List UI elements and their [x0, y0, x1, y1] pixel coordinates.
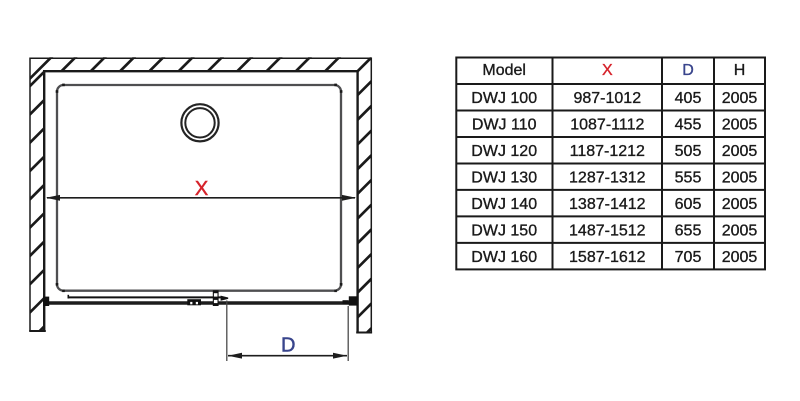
svg-text:1087-1112: 1087-1112	[570, 117, 644, 134]
svg-text:X: X	[602, 62, 613, 79]
svg-text:DWJ 100: DWJ 100	[471, 90, 537, 107]
svg-text:2005: 2005	[722, 249, 758, 266]
svg-text:555: 555	[675, 170, 702, 187]
svg-text:1287-1312: 1287-1312	[569, 170, 646, 187]
svg-text:2005: 2005	[722, 117, 758, 134]
svg-text:DWJ 130: DWJ 130	[471, 170, 537, 187]
svg-text:455: 455	[675, 117, 702, 134]
svg-text:2005: 2005	[722, 196, 758, 213]
svg-text:DWJ 150: DWJ 150	[471, 223, 537, 240]
svg-text:2005: 2005	[722, 143, 758, 160]
svg-text:DWJ 120: DWJ 120	[471, 143, 537, 160]
svg-text:505: 505	[675, 143, 702, 160]
svg-text:405: 405	[675, 90, 702, 107]
svg-text:987-1012: 987-1012	[573, 90, 641, 107]
svg-text:2005: 2005	[722, 223, 758, 240]
svg-text:655: 655	[675, 223, 702, 240]
svg-text:Model: Model	[482, 62, 526, 79]
svg-text:605: 605	[675, 196, 702, 213]
svg-text:2005: 2005	[722, 170, 758, 187]
svg-text:1387-1412: 1387-1412	[569, 196, 646, 213]
svg-text:1487-1512: 1487-1512	[569, 223, 646, 240]
svg-text:1187-1212: 1187-1212	[570, 143, 645, 160]
svg-text:DWJ 160: DWJ 160	[471, 249, 537, 266]
svg-text:DWJ 110: DWJ 110	[472, 117, 537, 134]
svg-text:2005: 2005	[722, 90, 758, 107]
svg-text:D: D	[281, 334, 295, 356]
svg-text:DWJ 140: DWJ 140	[471, 196, 537, 213]
svg-text:H: H	[734, 62, 746, 79]
svg-text:705: 705	[675, 249, 702, 266]
svg-text:D: D	[682, 62, 694, 79]
svg-text:X: X	[195, 178, 208, 200]
svg-text:1587-1612: 1587-1612	[569, 249, 646, 266]
